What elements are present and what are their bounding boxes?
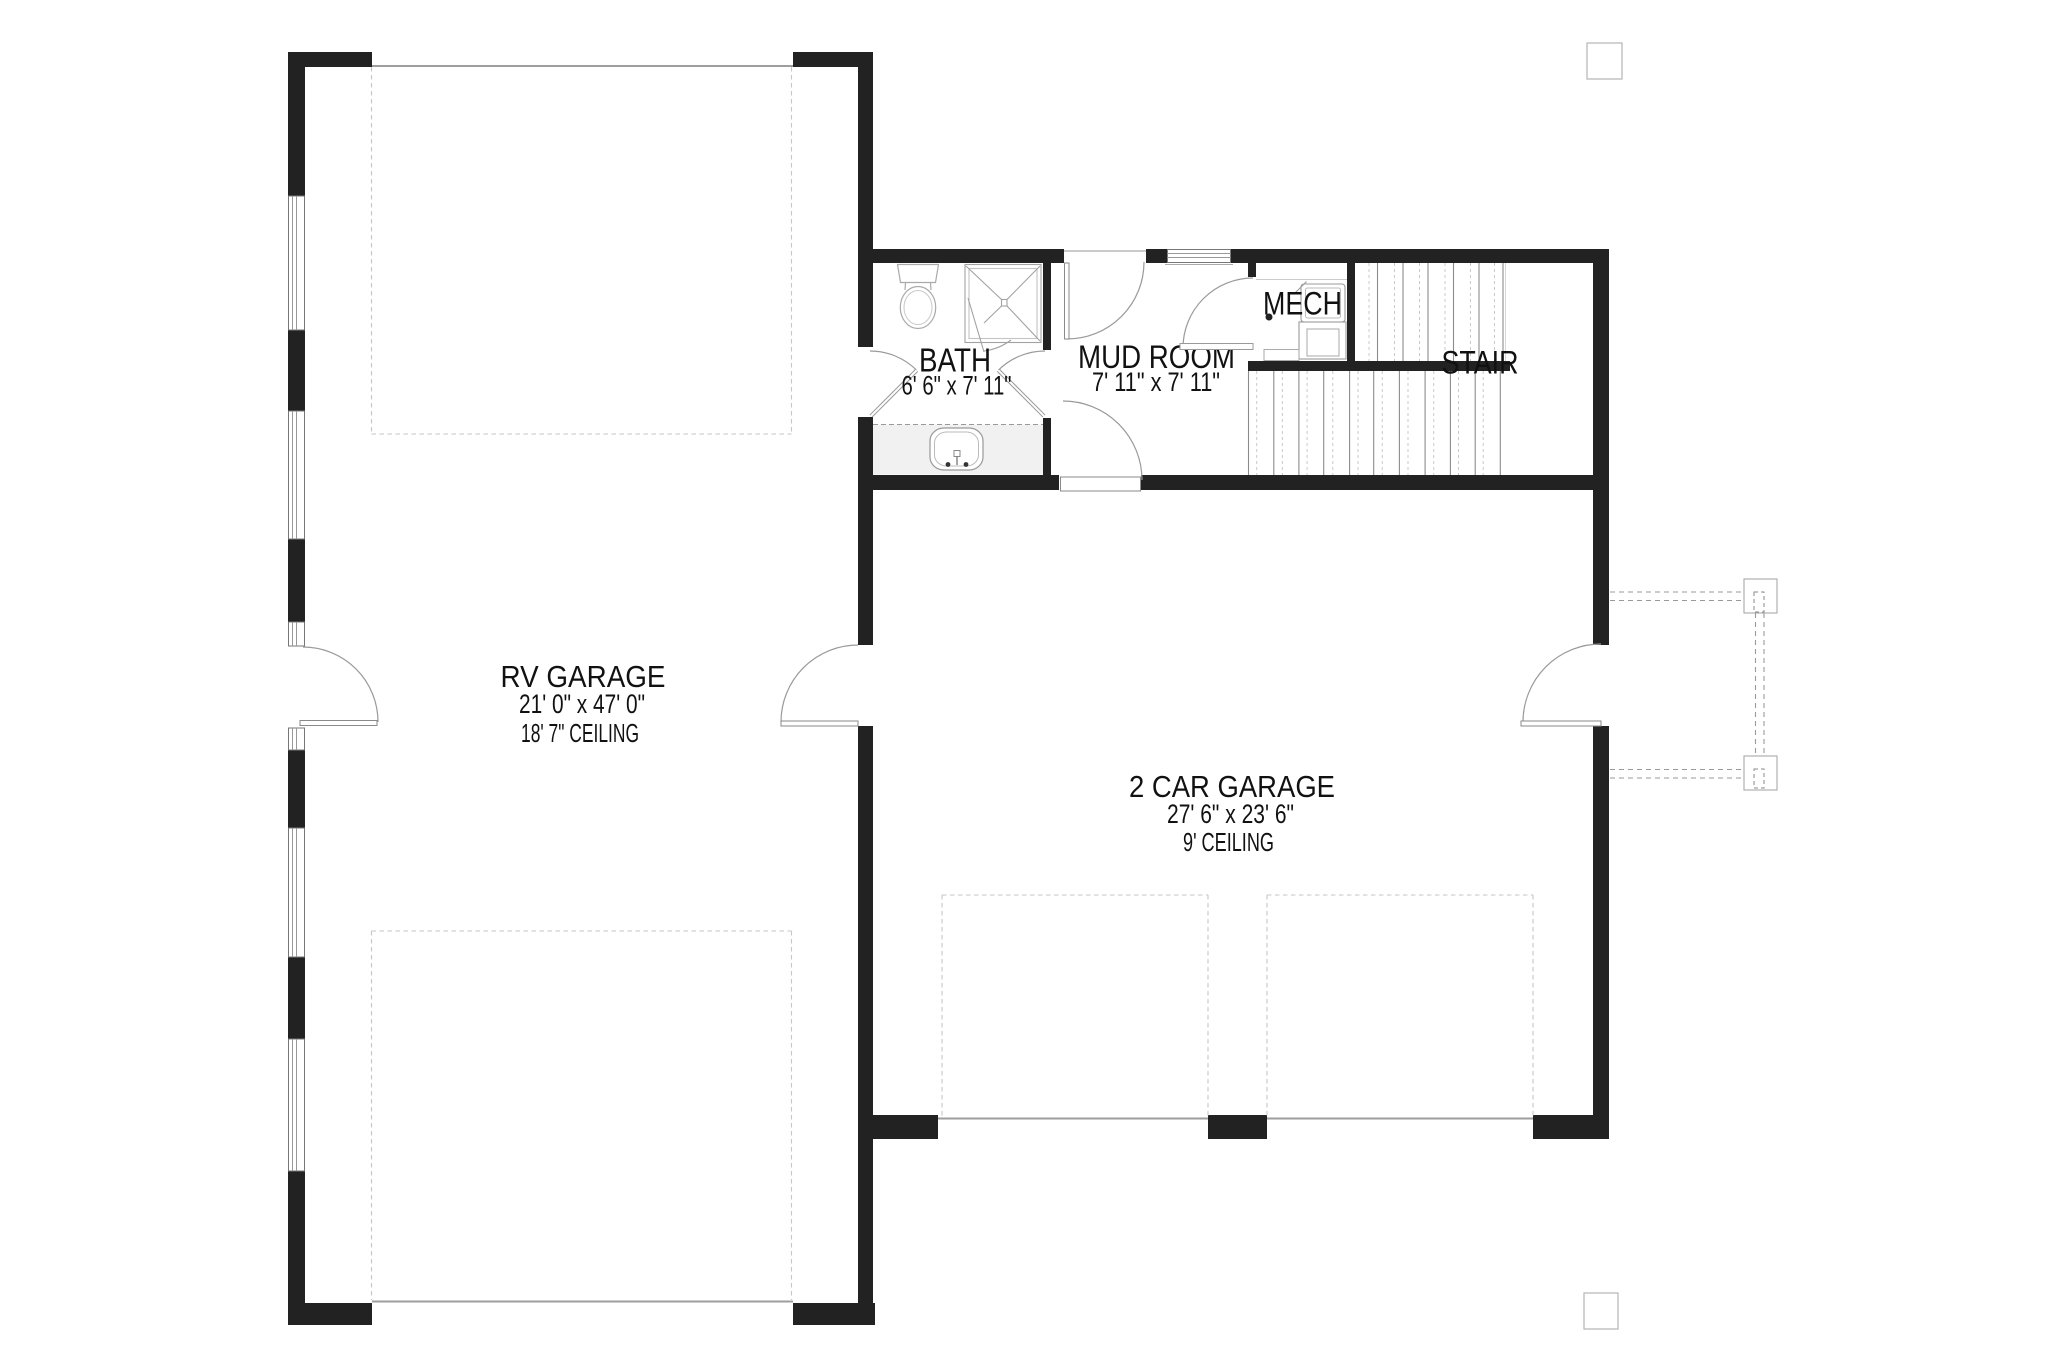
svg-text:21' 0" x 47' 0": 21' 0" x 47' 0" xyxy=(519,689,645,719)
svg-text:7' 11" x 7' 11": 7' 11" x 7' 11" xyxy=(1092,367,1220,397)
svg-text:6' 6" x 7' 11": 6' 6" x 7' 11" xyxy=(902,371,1012,401)
svg-text:9' CEILING: 9' CEILING xyxy=(1183,827,1274,857)
svg-text:STAIR: STAIR xyxy=(1442,345,1519,381)
svg-text:18' 7" CEILING: 18' 7" CEILING xyxy=(521,718,639,748)
svg-text:27' 6" x 23' 6": 27' 6" x 23' 6" xyxy=(1167,799,1294,829)
svg-text:MECH: MECH xyxy=(1263,286,1342,322)
